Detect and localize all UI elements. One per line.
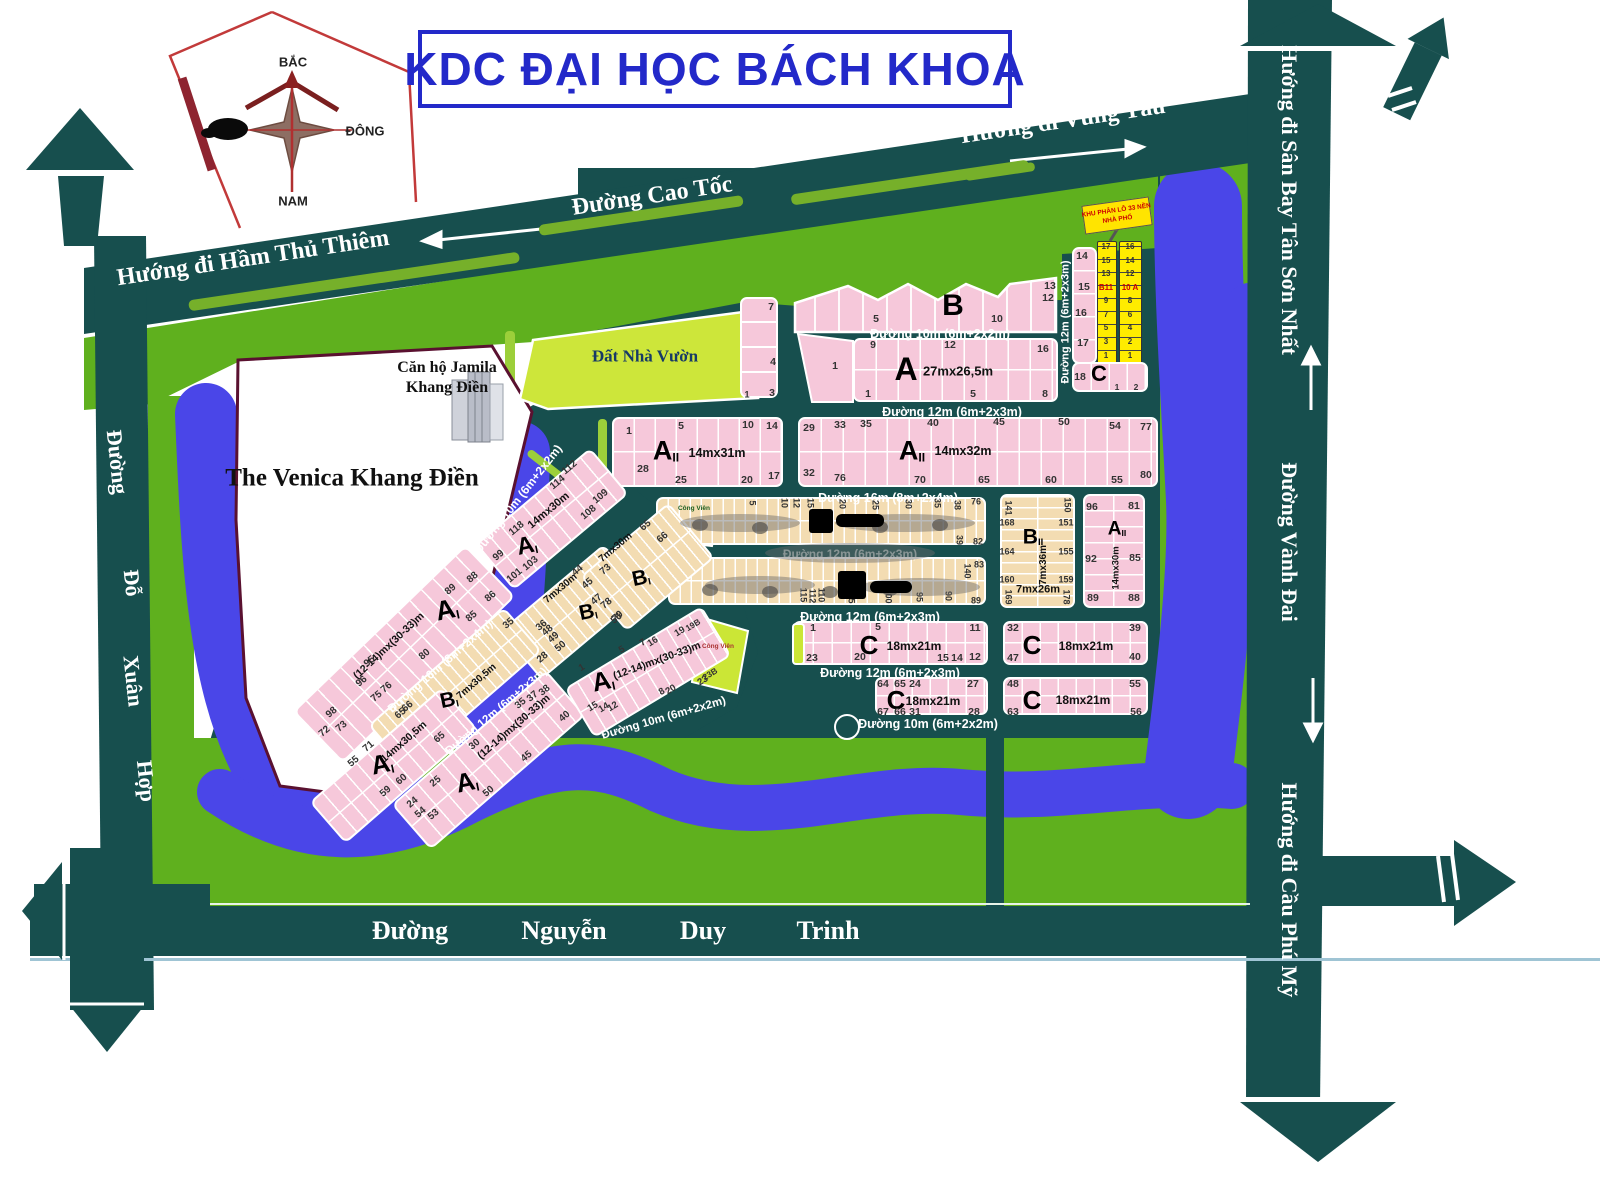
plot-number: 28 [637,464,649,475]
plot-number: 10 A [1122,284,1139,292]
plot-number: 10 [742,420,754,431]
block-label-a1: AI [433,594,461,625]
block-dims: 18mx21m [1059,640,1114,652]
plot-number: 28 [536,651,551,666]
plot-number: 65 [978,475,990,486]
plot-number: 1 [1128,352,1132,360]
compass-south: NAM [278,195,308,208]
plot-number: 13 [1102,270,1111,278]
road-label-nguyen-duy-trinh: Đường [372,918,448,944]
plot-number: 70 [914,475,926,486]
block-label-a2: AII [653,438,679,465]
plot-number: 73 [335,720,350,735]
plot-number: 17 [1102,243,1111,251]
plot-number: 59 [379,785,394,800]
block-label-c: C [1091,363,1107,385]
block-dims: 14mx30m [1111,546,1121,589]
plot-number: 2 [1134,383,1139,392]
plot-number: 4 [1128,324,1132,332]
block-dims: (12-14)mx(30-33)m [612,640,702,681]
plot-number: 12 [969,652,981,663]
plot-number: 89 [1087,593,1099,604]
plot-number: 65 [639,519,654,534]
plot-number: 48 [1007,679,1019,690]
plot-number: 85 [1129,553,1141,564]
road-label-12m: Đường 12m (6m+2x3m) [800,611,940,624]
plot-number: 72 [318,725,333,740]
road-label-12m: Đường 12m (6m+2x3m) [783,548,917,560]
block-label-a: A [894,353,917,385]
label-layer: Hướng đi Vũng TàuĐường Cao TốcHướng đi H… [0,0,1600,1187]
plot-number: 12 [606,700,620,714]
plot-number: 19B [684,617,702,632]
block-dims: 7mx30m [542,572,579,605]
plot-number: 80 [418,648,433,663]
map-title-box: KDC ĐẠI HỌC BÁCH KHOA [418,30,1012,108]
plot-number: 4 [770,357,776,368]
plot-number: 88 [1128,593,1140,604]
plot-number: 64 [877,679,889,690]
plot-number: 90 [944,591,953,601]
plot-number: 39 [1129,623,1141,634]
plot-number: 160 [999,576,1014,585]
plot-number: 32 [803,468,815,479]
plot-number: 45 [520,750,535,765]
road-label-cau-phu-my: Hướng đi Cầu Phú Mỹ [1278,783,1300,998]
plot-number: 151 [1058,519,1073,528]
road-label-cao-toc: Đường Cao Tốc [570,172,734,220]
plot-number: 88 [466,571,481,586]
plot-number: 54 [1109,421,1121,432]
plot-number: 12 [792,498,801,508]
plot-number: 1 [744,391,749,400]
plot-number: 24 [909,679,921,690]
area-label-venica: The Venica Khang Điền [225,466,479,491]
block-label-b1: BI [630,566,652,590]
plot-number: 7 [1104,311,1108,319]
plot-number: 16 [1075,308,1087,319]
plot-number: 15 [1102,257,1111,265]
road-label-10m: Đường 10m (6m+2x2m) [870,328,1010,341]
map-canvas: Hướng đi Vũng TàuĐường Cao TốcHướng đi H… [0,0,1600,1187]
plot-number: 32 [1007,623,1019,634]
plot-number: 5 [678,421,684,432]
compass-east: ĐÔNG [346,125,385,138]
plot-number: 3 [769,388,775,399]
plot-number: 76 [971,498,981,507]
plot-number: 96 [1086,502,1098,513]
plot-number: 140 [963,563,972,578]
road-label-nguyen-duy-trinh: Trinh [796,918,859,944]
plot-number: 100 [884,588,893,603]
plot-number: 20 [741,475,753,486]
plot-number: 14 [766,421,778,432]
plot-number: 86 [484,590,499,605]
plot-number: 10 [991,314,1003,325]
plot-number: 98 [325,706,340,721]
plot-number: 67 [877,707,889,718]
plot-number: 112 [808,589,817,604]
plot-number: 25 [429,775,444,790]
plot-number: 83 [974,561,984,570]
map-title: KDC ĐẠI HỌC BÁCH KHOA [404,42,1026,96]
plot-number: 40 [927,418,939,429]
plot-number: 5 [617,645,626,656]
road-label-san-bay: Hướng đi Sân Bay Tân Sơn Nhất [1278,45,1300,355]
plot-number: 99 [492,549,507,564]
plot-number: 1 [1104,352,1108,360]
plot-number: 29 [803,423,815,434]
road-label-vanh-dai: Đường Vành Đai [1278,462,1300,621]
plot-number: 53 [427,808,442,823]
plot-number: 85 [465,610,480,625]
plot-number: 15 [937,653,949,664]
block-dims: 14mx32m [935,445,992,458]
plot-number: 9 [870,340,876,351]
plot-number: 9 [1104,297,1108,305]
plot-number: 141 [1004,500,1013,515]
plot-number: 1 [832,361,838,372]
plot-number: 1 [577,663,586,674]
plot-number: 45 [581,577,596,592]
plot-number: 112 [561,459,580,477]
plot-number: 60 [1045,475,1057,486]
plot-number: 92 [1085,554,1097,565]
plot-number: 12 [1042,293,1054,304]
plot-number: 168 [999,519,1014,528]
plot-number: 35 [502,617,517,632]
road-label-10m: Đường 10m (6m+2x2m) [601,696,728,743]
plot-number: 45 [993,417,1005,428]
area-label-jamila: Căn hộ Jamila [397,360,497,376]
area-label-jamila: Khang Điền [406,380,488,396]
plot-number: 159 [1058,576,1073,585]
block-dims: (12-14)mx(30-33)m [352,611,427,682]
plot-number: 55 [1111,475,1123,486]
plot-number: 40 [1129,652,1141,663]
plot-number: 33 [834,420,846,431]
plot-number: 1 [810,623,816,634]
road-label-do-xuan-hop: Xuân [119,654,146,707]
block-dims: 14mx30m [526,491,571,532]
plot-number: 81 [1128,501,1140,512]
plot-number: 13 [1044,281,1056,292]
block-label-c: C [1023,687,1042,713]
plot-number: 50 [554,640,569,655]
block-label-b: B [942,291,964,321]
plot-number: 7 [768,302,774,313]
plot-number: 65 [433,731,448,746]
plot-number: 108 [579,504,598,522]
plot-number: 23 [806,653,818,664]
plot-number: 14 [1076,251,1088,262]
plot-number: 96 [355,675,370,690]
road-label-nguyen-duy-trinh: Nguyễn [521,918,606,944]
plot-number: 20 [838,499,847,509]
road-label-do-xuan-hop: Đường [103,429,132,495]
plot-number: 66 [894,707,906,718]
plot-number: 55 [347,755,362,770]
plot-number: 3 [1104,338,1108,346]
plot-number: 38 [953,500,962,510]
plot-number: 8 [1042,389,1048,400]
plot-number: 164 [999,548,1014,557]
road-label-do-xuan-hop: Hợp [133,759,159,803]
plot-number: 78 [600,597,615,612]
block-dims: 7mx26m [1016,585,1060,596]
plot-number: 17 [768,471,780,482]
block-label-c: C [1023,632,1042,658]
plot-number: 1 [626,426,632,437]
plot-number: 25 [675,475,687,486]
plot-number: 12 [1126,270,1135,278]
block-dims: 27mx26,5m [923,365,993,378]
plot-number: 1 [865,389,871,400]
block-dims: 14mx31m [689,447,746,460]
road-label-ham-thu-thiem: Hướng đi Hầm Thủ Thiêm [115,226,390,290]
plot-number: 77 [1140,422,1152,433]
plot-number: 15 [1078,282,1090,293]
plot-number: 65 [894,679,906,690]
plot-number: B11 [1099,284,1113,292]
plot-number: 18 [1074,372,1086,383]
area-label-cong-vien: Công Viên [702,644,734,651]
plot-number: 28 [968,707,980,718]
plot-number: 27 [967,679,979,690]
plot-number: 35 [860,419,872,430]
plot-number: 89 [971,597,981,606]
plot-number: 16 [1126,243,1135,251]
plot-number: 47 [1007,653,1019,664]
road-label-12m: Đường 12m (6m+2x3m) [1061,260,1072,383]
plot-number: 105 [847,588,856,603]
plot-number: 60 [395,773,410,788]
plot-number: 20 [854,652,866,663]
plot-number: 39 [955,535,964,545]
plot-number: 55 [1129,679,1141,690]
plot-number: 10 [780,498,789,508]
plot-number: 11 [969,623,980,634]
plot-number: 114 [549,474,568,492]
plot-number: 73 [599,563,614,578]
plot-number: 109 [591,488,610,506]
block-dims: 18mx21m [1056,694,1111,706]
block-dims: 18mx21m [887,640,942,652]
plot-number: 95 [915,592,924,602]
plot-number: 115 [799,588,808,603]
plot-number: 80 [1140,470,1152,481]
plot-number: 50 [1058,417,1070,428]
plot-number: 14 [951,653,963,664]
plot-number: 50 [482,785,497,800]
plot-number: 5 [875,622,881,633]
plot-number: 35 [933,498,942,508]
plot-number: 12 [944,340,956,351]
plot-number: 63 [1007,707,1019,718]
road-label-12m: Đường 12m (6m+2x3m) [820,667,960,680]
plot-number: 82 [973,538,983,547]
plot-number: 8 [1128,297,1132,305]
block-dims: 7mx30,5m [455,662,498,701]
road-label-10m: Đường 10m (6m+2x2m) [858,718,998,731]
block-label-a1: AI [453,767,480,798]
plot-number: 1 [1115,383,1120,392]
block-dims: 7mx30m [597,531,634,564]
plot-number: 2 [1128,338,1132,346]
plot-number: 15 [806,498,815,508]
plot-number: 76 [834,473,846,484]
plot-number: 5 [873,314,879,325]
plot-number: 169 [1004,589,1013,604]
plot-number: 5 [970,389,976,400]
plot-number: 30 [904,499,913,509]
plot-number: 66 [656,531,671,546]
road-label-nguyen-duy-trinh: Duy [680,918,726,944]
plot-number: 56 [1130,707,1142,718]
area-label-cong-vien: Công Viên [678,506,710,513]
plot-number: 6 [1128,311,1132,319]
plot-number: 155 [1058,548,1073,557]
plot-number: 178 [1062,589,1071,604]
plot-number: 150 [1063,497,1072,512]
plot-number: 25 [871,500,880,510]
area-label-dat-nha-vuon: Đất Nhà Vườn [592,348,698,365]
block-dims: 14mx30,5m [379,719,429,764]
block-label-a2: AII [1108,520,1126,539]
plot-number: 40 [558,710,573,725]
plot-number: 5 [748,500,757,505]
plot-number: 14 [1126,257,1135,265]
block-label-a2: AII [899,438,925,465]
plot-number: 16 [1037,344,1049,355]
compass-north: BẮC [279,56,307,69]
plot-number: 16 [646,635,660,649]
plot-number: 5 [1104,324,1108,332]
plot-number: 31 [909,707,921,718]
plot-number: 101 [505,567,524,585]
road-label-do-xuan-hop: Đỗ [120,568,145,597]
block-dims: 7mx36m [1039,545,1049,585]
plot-number: 110 [817,588,826,603]
plot-number: 17 [1077,338,1089,349]
